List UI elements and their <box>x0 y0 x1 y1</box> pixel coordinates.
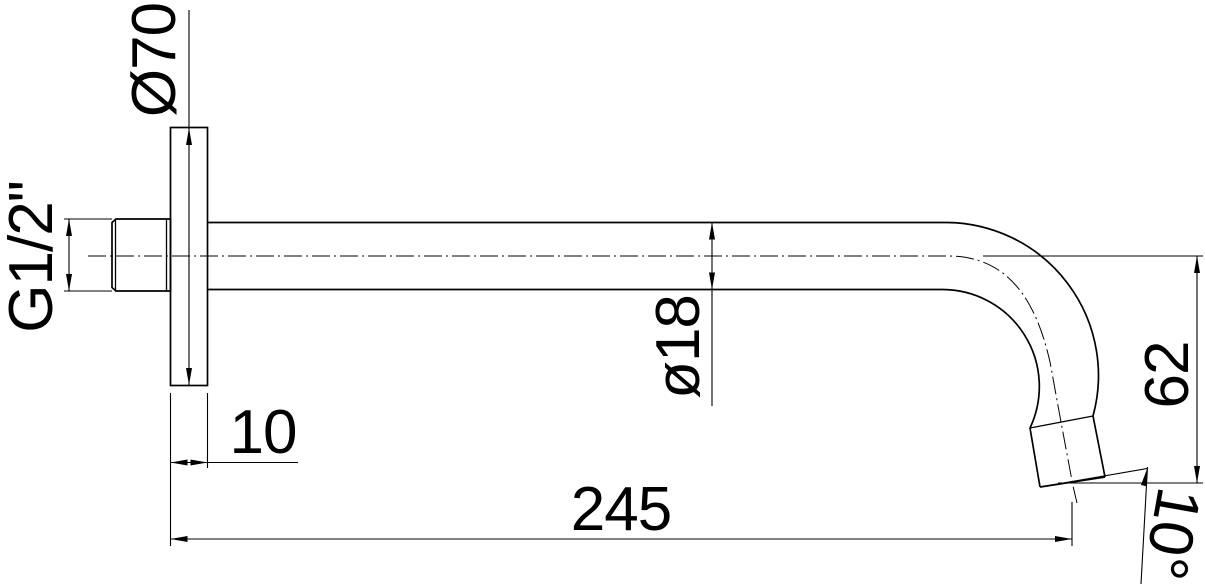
thread-nipple <box>112 219 171 291</box>
dim-label-pipe-diameter: ø18 <box>649 287 709 407</box>
dim-label-tip-angle: 10° <box>1132 474 1205 588</box>
dim-label-flange-diameter: Ø70 <box>124 5 186 115</box>
dim-thread <box>64 219 112 291</box>
dim-label-projection: 245 <box>561 482 681 538</box>
dim-label-thread: G1/2" <box>1 157 63 357</box>
dim-label-drop: 62 <box>1138 330 1198 420</box>
technical-drawing: Ø70 G1/2" ø18 10 245 62 10° <box>0 0 1205 588</box>
dim-label-flange-thickness: 10 <box>223 405 303 461</box>
